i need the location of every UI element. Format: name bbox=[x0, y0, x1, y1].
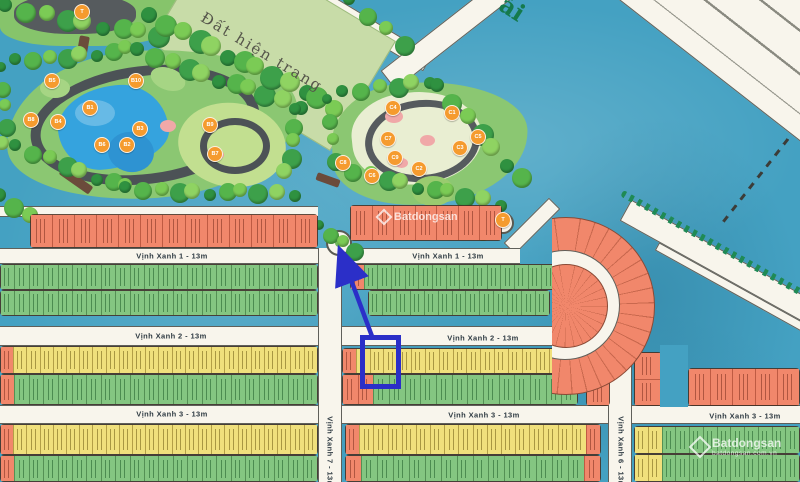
lot bbox=[106, 347, 119, 373]
tree-icon bbox=[336, 85, 348, 97]
lot bbox=[158, 291, 172, 315]
lot bbox=[259, 456, 273, 481]
lot bbox=[72, 265, 86, 289]
lot bbox=[466, 349, 480, 373]
tree-icon bbox=[403, 74, 419, 90]
lot-row bbox=[0, 290, 318, 316]
lot bbox=[777, 369, 799, 405]
lot bbox=[202, 265, 216, 289]
lot bbox=[224, 347, 237, 373]
lot bbox=[14, 291, 28, 315]
lot bbox=[74, 215, 96, 247]
lot bbox=[452, 291, 466, 315]
lot bbox=[264, 347, 277, 373]
park-lot-marker: B2 bbox=[119, 137, 135, 153]
street-label: Vịnh Xanh 6 - 13m bbox=[617, 416, 626, 482]
tree-icon bbox=[322, 94, 332, 104]
tree-icon bbox=[289, 190, 301, 202]
tree-icon bbox=[0, 82, 11, 98]
lot bbox=[158, 347, 171, 373]
lot bbox=[717, 455, 731, 481]
park-lot-marker: B5 bbox=[44, 73, 60, 89]
lot bbox=[351, 206, 372, 240]
lot bbox=[487, 265, 501, 289]
lot bbox=[101, 456, 115, 481]
lot bbox=[96, 215, 118, 247]
tree-icon bbox=[412, 183, 424, 195]
lot bbox=[130, 291, 144, 315]
lot-row bbox=[350, 264, 556, 290]
tree-icon bbox=[43, 50, 57, 64]
lot bbox=[703, 455, 717, 481]
lot bbox=[43, 375, 57, 404]
park-lot-marker: C6 bbox=[364, 168, 380, 184]
lot bbox=[504, 456, 520, 481]
lot bbox=[689, 455, 703, 481]
lot bbox=[274, 456, 288, 481]
lot bbox=[520, 456, 536, 481]
lot bbox=[53, 425, 66, 454]
lot bbox=[130, 375, 144, 404]
watermark: Batdongsan batdongsan.com.vn bbox=[692, 436, 781, 457]
lot bbox=[536, 456, 552, 481]
tree-icon bbox=[91, 50, 103, 62]
lot bbox=[207, 215, 229, 247]
tree-icon bbox=[276, 163, 292, 179]
lot bbox=[29, 456, 43, 481]
lot bbox=[172, 347, 185, 373]
lot bbox=[391, 265, 405, 289]
lot bbox=[483, 375, 499, 404]
tree-icon bbox=[155, 182, 169, 196]
lot bbox=[173, 375, 187, 404]
lot bbox=[377, 456, 393, 481]
park-lot-marker: T bbox=[74, 4, 90, 20]
lot bbox=[494, 349, 508, 373]
tree-icon bbox=[119, 181, 131, 193]
lot bbox=[648, 427, 662, 453]
lot bbox=[473, 425, 487, 454]
lot bbox=[251, 425, 264, 454]
lot bbox=[86, 291, 100, 315]
watermark-logo-icon bbox=[376, 209, 393, 226]
tree-icon bbox=[327, 133, 339, 145]
lot bbox=[346, 456, 361, 481]
flower-patch bbox=[420, 135, 435, 146]
tree-icon bbox=[460, 108, 476, 124]
lot bbox=[79, 425, 92, 454]
tree-icon bbox=[392, 173, 408, 189]
lot bbox=[238, 425, 251, 454]
park-lot-marker: C9 bbox=[387, 150, 403, 166]
park-lot-marker: B10 bbox=[128, 73, 144, 89]
lot bbox=[730, 455, 744, 481]
lot bbox=[444, 425, 458, 454]
lot bbox=[303, 375, 317, 404]
tree-icon bbox=[475, 190, 491, 206]
lot bbox=[158, 456, 172, 481]
lot bbox=[364, 265, 378, 289]
lot bbox=[584, 456, 600, 481]
tree-icon bbox=[91, 174, 103, 186]
lot bbox=[528, 265, 542, 289]
lot bbox=[359, 425, 373, 454]
lot bbox=[29, 291, 43, 315]
lot bbox=[58, 265, 72, 289]
lot-row bbox=[0, 374, 318, 405]
tree-icon bbox=[352, 83, 370, 101]
tree-icon bbox=[346, 243, 364, 261]
lot bbox=[409, 456, 425, 481]
lot bbox=[145, 347, 158, 373]
tree-icon bbox=[373, 79, 387, 93]
lot bbox=[458, 206, 480, 240]
lot bbox=[689, 369, 710, 405]
lot bbox=[288, 375, 302, 404]
street-road bbox=[0, 405, 800, 424]
lot bbox=[405, 265, 419, 289]
lot bbox=[140, 215, 162, 247]
lot bbox=[418, 265, 432, 289]
lot bbox=[452, 375, 468, 404]
lot bbox=[92, 425, 105, 454]
lot bbox=[58, 291, 72, 315]
lot bbox=[198, 347, 211, 373]
lot bbox=[635, 427, 648, 453]
lot bbox=[1, 265, 14, 289]
tree-icon bbox=[500, 159, 514, 173]
lot bbox=[58, 456, 72, 481]
lot bbox=[259, 265, 273, 289]
lot bbox=[158, 265, 172, 289]
lot bbox=[31, 215, 52, 247]
lot bbox=[115, 375, 129, 404]
park-lot-marker: B6 bbox=[94, 137, 110, 153]
lot bbox=[438, 291, 452, 315]
lot bbox=[58, 375, 72, 404]
lot bbox=[411, 349, 425, 373]
lot bbox=[14, 456, 28, 481]
street-label: Vịnh Xanh 3 - 13m bbox=[136, 410, 207, 419]
lot bbox=[132, 347, 145, 373]
lot bbox=[29, 265, 43, 289]
lot bbox=[785, 455, 799, 481]
lot bbox=[86, 456, 100, 481]
park-lot-marker: B3 bbox=[132, 121, 148, 137]
lot bbox=[420, 375, 436, 404]
lot bbox=[501, 425, 515, 454]
tree-icon bbox=[440, 183, 454, 197]
lot bbox=[441, 456, 457, 481]
lot bbox=[373, 425, 387, 454]
lot bbox=[457, 456, 473, 481]
lot bbox=[202, 456, 216, 481]
lot bbox=[115, 291, 129, 315]
lot bbox=[187, 456, 201, 481]
lot bbox=[26, 347, 39, 373]
highway-road bbox=[537, 0, 800, 219]
park-lot-marker: C4 bbox=[385, 100, 401, 116]
lot bbox=[187, 375, 201, 404]
lot-row bbox=[0, 424, 318, 455]
street-label: Vịnh Xanh 2 - 13m bbox=[135, 332, 206, 341]
lot bbox=[410, 291, 424, 315]
tree-icon bbox=[192, 64, 210, 82]
lot bbox=[198, 425, 211, 454]
lot bbox=[424, 291, 438, 315]
lot bbox=[101, 291, 115, 315]
lot bbox=[216, 375, 230, 404]
lot bbox=[216, 456, 230, 481]
lot bbox=[662, 455, 676, 481]
lot bbox=[43, 265, 57, 289]
lot bbox=[72, 456, 86, 481]
lot bbox=[132, 425, 145, 454]
tree-icon bbox=[141, 7, 157, 23]
lot bbox=[144, 291, 158, 315]
lot bbox=[172, 425, 185, 454]
tree-icon bbox=[286, 133, 300, 147]
tree-icon bbox=[184, 183, 200, 199]
park-lot-marker: T bbox=[495, 212, 511, 228]
tree-icon bbox=[322, 114, 338, 130]
lot bbox=[1, 425, 13, 454]
lot bbox=[158, 425, 171, 454]
lot bbox=[86, 265, 100, 289]
street-label: Vịnh Xanh 1 - 13m bbox=[136, 252, 207, 261]
lot bbox=[211, 347, 224, 373]
lot bbox=[535, 291, 549, 315]
lot-row bbox=[0, 455, 318, 482]
lot bbox=[710, 369, 732, 405]
lot bbox=[514, 375, 530, 404]
tree-icon bbox=[43, 150, 57, 164]
park-lot-marker: B4 bbox=[50, 114, 66, 130]
lot bbox=[1, 456, 14, 481]
lot bbox=[158, 375, 172, 404]
lot bbox=[43, 456, 57, 481]
lot bbox=[755, 369, 777, 405]
tree-icon bbox=[233, 183, 247, 197]
lot bbox=[343, 349, 356, 373]
tree-icon bbox=[240, 79, 256, 95]
lot bbox=[173, 265, 187, 289]
lot bbox=[529, 425, 543, 454]
tree-icon bbox=[204, 189, 216, 201]
lot bbox=[432, 265, 446, 289]
lot bbox=[13, 425, 26, 454]
lot bbox=[251, 347, 264, 373]
lot bbox=[173, 456, 187, 481]
tree-icon bbox=[71, 162, 87, 178]
lot bbox=[446, 265, 460, 289]
lot bbox=[251, 215, 273, 247]
lot bbox=[86, 375, 100, 404]
watermark-subtext: batdongsan.com.vn bbox=[712, 450, 781, 457]
park-lot-marker: C5 bbox=[470, 129, 486, 145]
lot bbox=[144, 456, 158, 481]
lot bbox=[1, 347, 13, 373]
lot bbox=[185, 215, 207, 247]
lot bbox=[459, 265, 473, 289]
tree-icon bbox=[359, 8, 377, 26]
lot bbox=[264, 425, 277, 454]
lot bbox=[106, 425, 119, 454]
lot bbox=[119, 347, 132, 373]
tree-icon bbox=[130, 22, 146, 38]
tree-icon bbox=[39, 5, 55, 21]
tree-icon bbox=[212, 75, 226, 89]
lot bbox=[744, 455, 758, 481]
street-label: Vịnh Xanh 3 - 13m bbox=[709, 412, 780, 421]
lot-row bbox=[30, 214, 318, 248]
lot bbox=[202, 375, 216, 404]
lot bbox=[558, 425, 572, 454]
lot-row bbox=[0, 346, 318, 374]
lot bbox=[245, 291, 259, 315]
lot bbox=[507, 291, 521, 315]
lot bbox=[530, 375, 546, 404]
flower-patch bbox=[160, 120, 176, 132]
lot bbox=[274, 291, 288, 315]
park-lot-marker: C7 bbox=[380, 131, 396, 147]
lot bbox=[552, 456, 568, 481]
lot bbox=[508, 349, 522, 373]
lot-row bbox=[345, 455, 601, 482]
lot bbox=[277, 347, 290, 373]
tree-icon bbox=[395, 36, 415, 56]
tree-icon bbox=[289, 103, 301, 115]
lot bbox=[467, 375, 483, 404]
lot bbox=[405, 375, 421, 404]
lot bbox=[115, 456, 129, 481]
park-lot-marker: B9 bbox=[202, 117, 218, 133]
lot bbox=[202, 291, 216, 315]
lot bbox=[522, 349, 536, 373]
lot bbox=[500, 265, 514, 289]
lot bbox=[493, 291, 507, 315]
lot bbox=[1, 375, 14, 404]
tree-icon bbox=[71, 46, 87, 62]
tree-icon bbox=[9, 139, 21, 151]
lot bbox=[119, 425, 132, 454]
lot-row bbox=[345, 424, 601, 455]
lot bbox=[72, 375, 86, 404]
lot bbox=[92, 347, 105, 373]
lot bbox=[480, 349, 494, 373]
park-lot-marker: C1 bbox=[444, 105, 460, 121]
lot bbox=[586, 425, 600, 454]
lot bbox=[369, 291, 382, 315]
lot bbox=[514, 265, 528, 289]
lot bbox=[231, 375, 245, 404]
lot bbox=[14, 375, 28, 404]
lot bbox=[145, 425, 158, 454]
lot bbox=[259, 375, 273, 404]
lot bbox=[238, 347, 251, 373]
lot bbox=[396, 291, 410, 315]
tree-icon bbox=[0, 62, 6, 72]
lot bbox=[377, 265, 391, 289]
watermark-logo-icon bbox=[689, 435, 712, 458]
street-label: Vịnh Xanh 2 - 13m bbox=[447, 334, 518, 343]
tree-icon bbox=[430, 78, 444, 92]
lot bbox=[231, 291, 245, 315]
lot bbox=[515, 425, 529, 454]
lot bbox=[277, 425, 290, 454]
lot bbox=[290, 347, 303, 373]
lot bbox=[162, 215, 184, 247]
lot bbox=[1, 291, 14, 315]
masterplan-map: Đất hiện trang ải Batdongsan Batdongsan … bbox=[0, 0, 800, 482]
park-lot-marker: C3 bbox=[452, 140, 468, 156]
lot bbox=[439, 349, 453, 373]
tree-icon bbox=[96, 22, 110, 36]
lot bbox=[130, 456, 144, 481]
lot-row bbox=[634, 454, 800, 482]
lot bbox=[425, 349, 439, 373]
lot bbox=[288, 265, 302, 289]
lot bbox=[245, 265, 259, 289]
tree-icon bbox=[155, 15, 177, 37]
lot bbox=[303, 265, 317, 289]
lot bbox=[290, 425, 303, 454]
lot bbox=[231, 265, 245, 289]
lot bbox=[393, 456, 409, 481]
lot bbox=[346, 425, 359, 454]
lot bbox=[185, 425, 198, 454]
lot bbox=[732, 369, 754, 405]
water-channel bbox=[660, 345, 688, 407]
lot bbox=[785, 427, 799, 453]
lot bbox=[488, 456, 504, 481]
tree-icon bbox=[248, 184, 268, 204]
lot bbox=[572, 425, 586, 454]
lot bbox=[224, 425, 237, 454]
lot bbox=[479, 291, 493, 315]
lot bbox=[40, 347, 53, 373]
tree-icon bbox=[130, 42, 144, 56]
lot bbox=[245, 456, 259, 481]
lot bbox=[675, 427, 689, 453]
street-label: Vịnh Xanh 3 - 13m bbox=[448, 411, 519, 420]
watermark-text: Batdongsan bbox=[394, 211, 458, 223]
tree-icon bbox=[24, 146, 42, 164]
curve-lot-block bbox=[552, 215, 658, 400]
lot bbox=[144, 265, 158, 289]
lot bbox=[458, 425, 472, 454]
lot bbox=[543, 425, 557, 454]
lot bbox=[303, 456, 317, 481]
tree-icon bbox=[337, 235, 349, 247]
tree-icon bbox=[201, 36, 221, 56]
lot bbox=[274, 375, 288, 404]
lot bbox=[295, 215, 317, 247]
lot bbox=[40, 425, 53, 454]
river-label: ải bbox=[494, 0, 530, 27]
park-lot-marker: B7 bbox=[207, 146, 223, 162]
lot bbox=[772, 455, 786, 481]
lot-row bbox=[0, 264, 318, 290]
tree-icon bbox=[0, 188, 6, 202]
lot bbox=[288, 456, 302, 481]
lot bbox=[568, 456, 584, 481]
tree-icon bbox=[134, 182, 152, 200]
watermark: Batdongsan bbox=[378, 211, 458, 223]
lot bbox=[245, 375, 259, 404]
lot bbox=[402, 425, 416, 454]
lot bbox=[758, 455, 772, 481]
